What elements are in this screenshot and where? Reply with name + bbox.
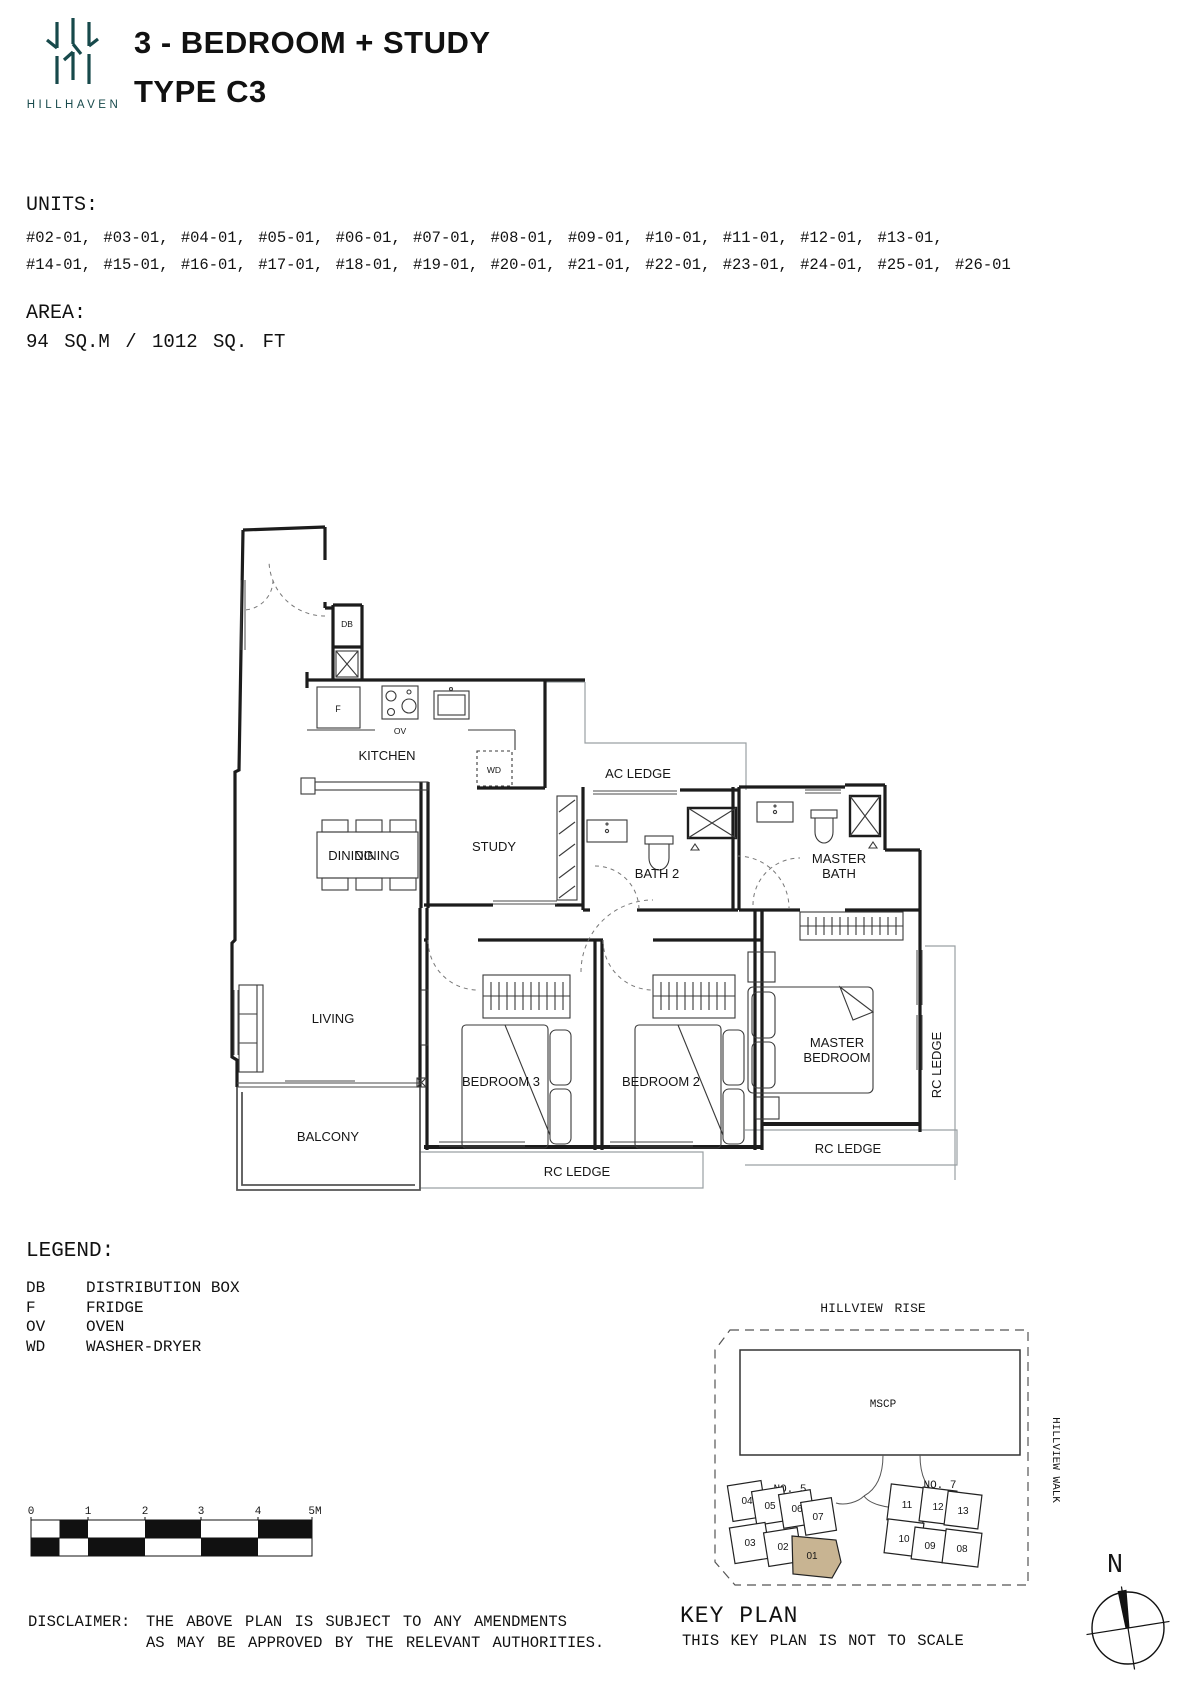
- unit-02: 02: [777, 1542, 789, 1553]
- wd-label: WD: [487, 765, 501, 775]
- scale-bar: 0 1 2 3 4 5M: [20, 1502, 340, 1574]
- compass-needle: [1118, 1590, 1133, 1629]
- unit-04: 04: [741, 1496, 753, 1507]
- area-value: 94 SQ.M / 1012 SQ. FT: [26, 331, 285, 353]
- legend-desc-ov: OVEN: [86, 1318, 124, 1338]
- legend-item-wd: WD WASHER-DRYER: [26, 1338, 240, 1358]
- door-arcs: [243, 560, 800, 990]
- oven-label2: OV: [394, 726, 407, 736]
- scale-tick-3: 3: [198, 1506, 205, 1518]
- legend-abbr-db: DB: [26, 1279, 86, 1299]
- disclaimer-label: DISCLAIMER:: [28, 1612, 146, 1654]
- fridge-label: F: [335, 704, 341, 714]
- keyplan-subtitle: THIS KEY PLAN IS NOT TO SCALE: [682, 1632, 964, 1650]
- unit-08: 08: [956, 1544, 968, 1555]
- scale-bar-segments: [31, 1520, 312, 1556]
- compass-cross: [1082, 1580, 1176, 1675]
- master-bath-label-2: BATH: [822, 866, 856, 881]
- scale-tick-2: 2: [142, 1506, 149, 1518]
- keyplan-title: KEY PLAN: [680, 1603, 798, 1629]
- brand-text: HILLHAVEN: [27, 99, 122, 111]
- rc-ledge-right-label: RC LEDGE: [929, 1031, 944, 1098]
- unit-05: 05: [764, 1501, 776, 1512]
- unit-11: 11: [902, 1500, 913, 1511]
- bedroom3-label: BEDROOM 3: [462, 1074, 540, 1089]
- disclaimer-text: THE ABOVE PLAN IS SUBJECT TO ANY AMENDME…: [146, 1612, 604, 1654]
- units-line-2: #14-01, #15-01, #16-01, #17-01, #18-01, …: [26, 252, 1011, 279]
- kitchen-label: KITCHEN: [358, 748, 415, 763]
- hillhaven-bamboo-icon: [26, 14, 122, 92]
- legend-desc-db: DISTRIBUTION BOX: [86, 1279, 240, 1299]
- scale-tick-4: 4: [255, 1506, 262, 1518]
- disclaimer-line-1: THE ABOVE PLAN IS SUBJECT TO ANY AMENDME…: [146, 1612, 604, 1633]
- unit-01: 01: [806, 1551, 818, 1562]
- north-compass: N: [1082, 1540, 1177, 1675]
- brand-name: HILLHAVEN: [26, 99, 122, 111]
- units-label: UNITS:: [26, 194, 1011, 217]
- master-bedroom-label-1: MASTER: [810, 1035, 864, 1050]
- rc-ledge-bottom-label: RC LEDGE: [544, 1164, 611, 1179]
- balcony-label: BALCONY: [297, 1129, 359, 1144]
- legend-desc-f: FRIDGE: [86, 1299, 144, 1319]
- room-labels: DB F OV WD KITCHEN DINING DINING STUDY A…: [297, 619, 944, 1179]
- scale-tick-1: 1: [85, 1506, 92, 1518]
- unit-13: 13: [957, 1506, 969, 1517]
- unit-07: 07: [812, 1512, 824, 1523]
- study-label: STUDY: [472, 839, 516, 854]
- dining-label-2: DINING: [354, 848, 400, 863]
- north-label: N: [1107, 1551, 1123, 1581]
- bedroom2-label: BEDROOM 2: [622, 1074, 700, 1089]
- legend-item-f: F FRIDGE: [26, 1299, 240, 1319]
- floorplan-drawing: DB F OV WD KITCHEN DINING DINING STUDY A…: [225, 520, 960, 1210]
- unit-09: 09: [924, 1541, 936, 1552]
- scale-tick-0: 0: [28, 1506, 35, 1518]
- title-line1: 3 - BEDROOM + STUDY: [134, 25, 491, 60]
- legend-desc-wd: WASHER-DRYER: [86, 1338, 201, 1358]
- legend-abbr-f: F: [26, 1299, 86, 1319]
- area-block: AREA: 94 SQ.M / 1012 SQ. FT: [26, 302, 285, 353]
- unit-06: 06: [791, 1504, 803, 1515]
- floorplan-page: HILLHAVEN 3 - BEDROOM + STUDYTYPE C3 UNI…: [0, 0, 1190, 1684]
- disclaimer-block: DISCLAIMER: THE ABOVE PLAN IS SUBJECT TO…: [28, 1612, 604, 1654]
- bath2-label: BATH 2: [635, 866, 680, 881]
- disclaimer-line-2: AS MAY BE APPROVED BY THE RELEVANT AUTHO…: [146, 1633, 604, 1654]
- db-label: DB: [341, 619, 353, 629]
- page-title: 3 - BEDROOM + STUDYTYPE C3: [134, 18, 491, 116]
- ledge-outlines: [420, 682, 957, 1188]
- legend-abbr-wd: WD: [26, 1338, 86, 1358]
- legend-abbr-ov: OV: [26, 1318, 86, 1338]
- ac-ledge-label: AC LEDGE: [605, 766, 671, 781]
- master-bedroom-label-2: BEDROOM: [803, 1050, 870, 1065]
- scale-tick-5: 5M: [308, 1506, 321, 1518]
- legend-label: LEGEND:: [26, 1240, 240, 1263]
- area-label: AREA:: [26, 302, 285, 325]
- key-plan: HILLVIEW RISE MSCP NO. 5 NO. 7: [640, 1200, 1060, 1600]
- units-line-1: #02-01, #03-01, #04-01, #05-01, #06-01, …: [26, 225, 1011, 252]
- legend-block: LEGEND: DB DISTRIBUTION BOX F FRIDGE OV …: [26, 1240, 240, 1357]
- legend-item-db: DB DISTRIBUTION BOX: [26, 1279, 240, 1299]
- fixtures: [239, 651, 903, 1148]
- living-label: LIVING: [312, 1011, 355, 1026]
- units-block: UNITS: #02-01, #03-01, #04-01, #05-01, #…: [26, 194, 1011, 279]
- master-bath-label-1: MASTER: [812, 851, 866, 866]
- road-hillview-rise: HILLVIEW RISE: [820, 1301, 926, 1316]
- road-hillview-walk: HILLVIEW WALK: [1049, 1417, 1060, 1503]
- rc-ledge-bottom-right-label: RC LEDGE: [815, 1141, 882, 1156]
- mscp-label: MSCP: [870, 1399, 897, 1411]
- unit-10: 10: [898, 1534, 910, 1545]
- title-line2: TYPE C3: [134, 74, 267, 109]
- unit-12: 12: [932, 1502, 944, 1513]
- legend-item-ov: OV OVEN: [26, 1318, 240, 1338]
- brand-logo: HILLHAVEN: [26, 14, 122, 111]
- unit-03: 03: [744, 1538, 756, 1549]
